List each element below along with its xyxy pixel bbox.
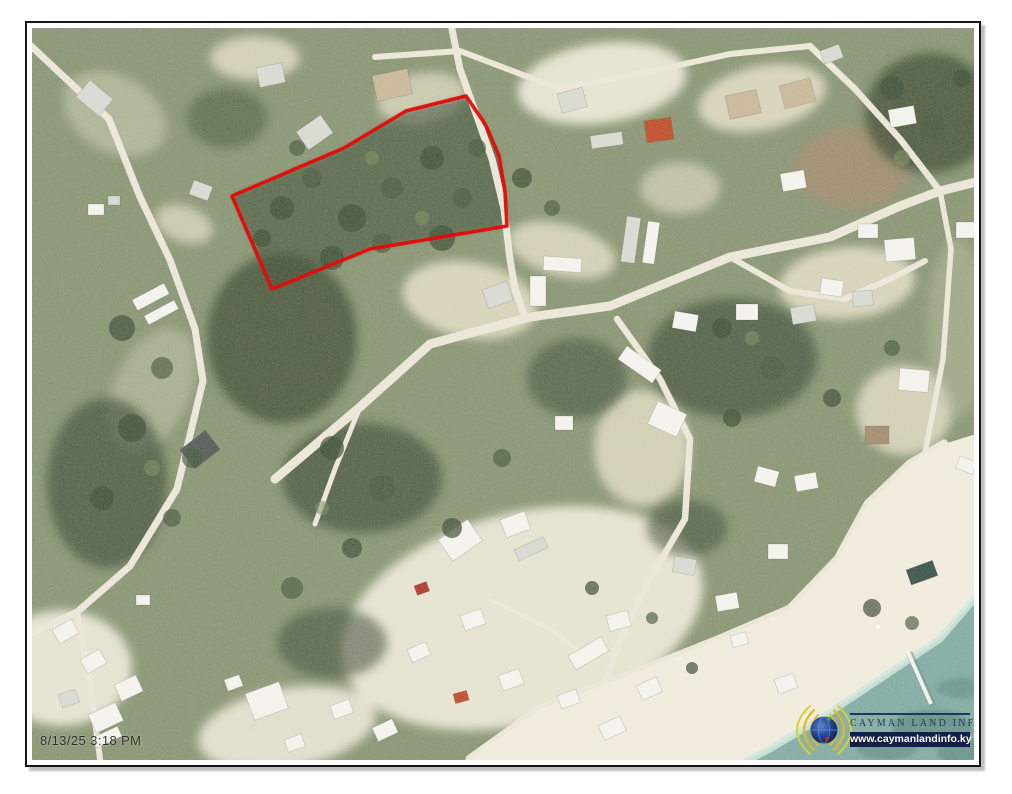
brand-logo-block: CAYMAN LAND INFO www.caymanlandinfo.ky [790,700,972,758]
brand-text-block: CAYMAN LAND INFO www.caymanlandinfo.ky [850,713,970,747]
photo-grain [32,28,974,760]
brand-url-banner: www.caymanlandinfo.ky [850,732,970,747]
map-frame: 8/13/25 3:18 PM [25,21,981,767]
timestamp-label: 8/13/25 3:18 PM [40,733,141,748]
aerial-photo-canvas [32,28,974,760]
brand-divider-line [850,713,970,715]
brand-url: www.caymanlandinfo.ky [850,733,972,745]
brand-name: CAYMAN LAND INFO [850,718,970,729]
aerial-map-image: 8/13/25 3:18 PM [32,28,974,760]
